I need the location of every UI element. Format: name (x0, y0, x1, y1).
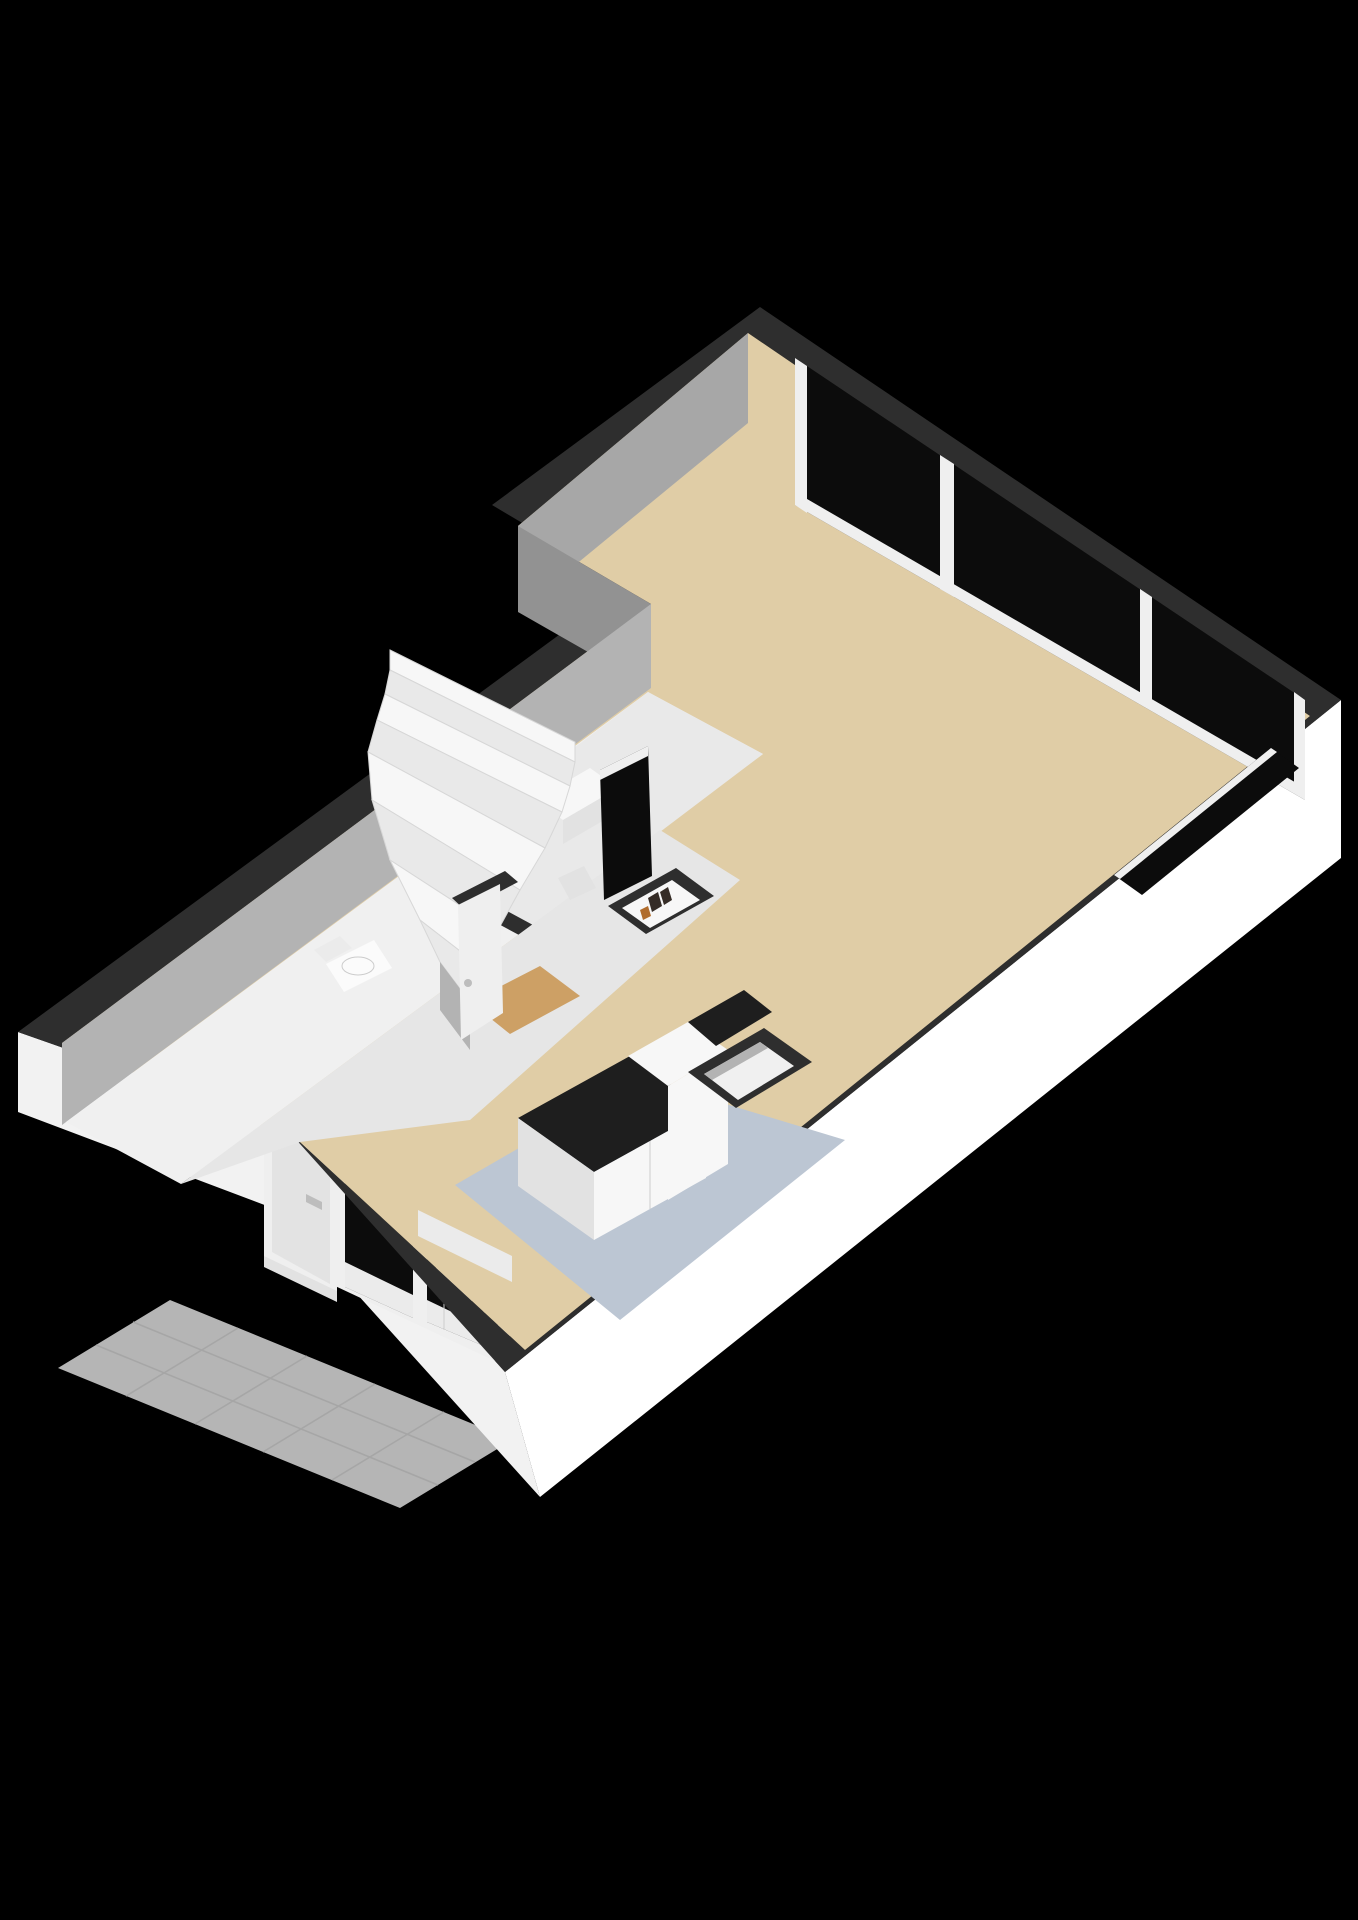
floorplan-3d-render (0, 0, 1358, 1920)
facade-mullion (1140, 589, 1152, 710)
hall-door-handle (464, 979, 472, 987)
floorplan-canvas (0, 0, 1358, 1920)
interior-sidelight (600, 746, 652, 900)
hall-door-slab (458, 884, 503, 1040)
facade-mullion (940, 455, 954, 597)
facade-mullion (795, 358, 807, 513)
facade-mullion (1294, 692, 1305, 800)
